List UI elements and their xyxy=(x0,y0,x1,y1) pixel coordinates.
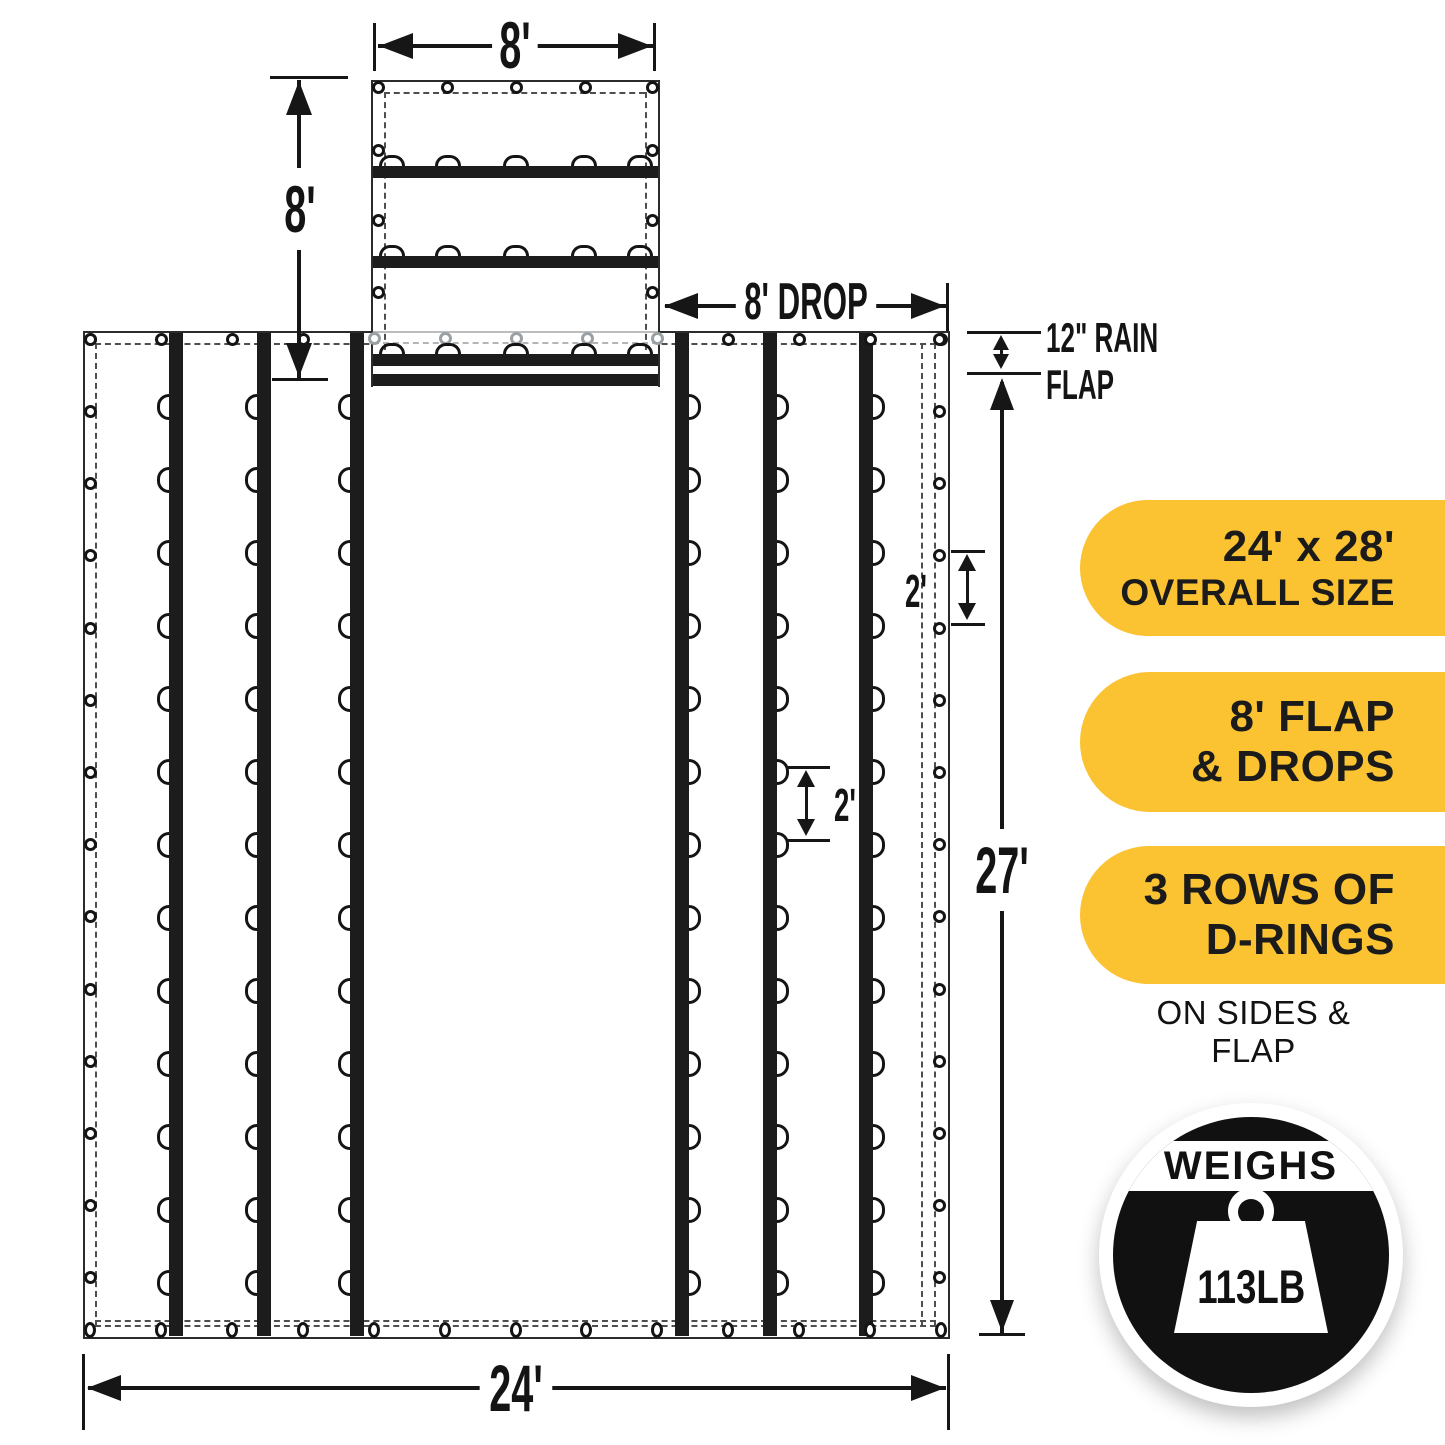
arrowhead xyxy=(993,335,1009,350)
d-ring xyxy=(503,245,529,256)
grommet xyxy=(722,1322,734,1338)
grommet xyxy=(368,332,381,345)
badge-line: 24' x 28' xyxy=(1223,522,1395,572)
dimension-tick xyxy=(951,623,985,626)
grommet xyxy=(368,1322,380,1338)
dashed-hem-line xyxy=(384,92,388,350)
grommet xyxy=(155,333,168,346)
weight-badge: WEIGHS 113LB xyxy=(1099,1103,1403,1407)
grommet xyxy=(580,1322,592,1338)
dimension-tick xyxy=(373,23,376,71)
grommet xyxy=(933,983,946,996)
badges-caption: ON SIDES & FLAP xyxy=(1115,994,1392,1070)
dimension-line xyxy=(1000,382,1004,843)
grommet xyxy=(439,1322,451,1338)
arrowhead xyxy=(958,554,976,571)
badge-line: 8' FLAP xyxy=(1229,692,1395,742)
arrowhead xyxy=(286,343,312,377)
grommet xyxy=(84,1271,97,1284)
grommet xyxy=(372,81,385,94)
flap-webbing-strap xyxy=(373,354,658,366)
dim-label-dring-spacing: 2' xyxy=(834,782,856,828)
grommet xyxy=(933,333,946,346)
grommet xyxy=(84,477,97,490)
grommet xyxy=(372,286,385,299)
grommet xyxy=(579,81,592,94)
dimension-tick xyxy=(946,283,949,331)
arrowhead xyxy=(379,33,413,59)
d-ring xyxy=(571,155,597,166)
grommet xyxy=(933,766,946,779)
flap-webbing-strap xyxy=(373,166,658,178)
grommet xyxy=(510,1322,522,1338)
flap-webbing-strap xyxy=(373,256,658,268)
weight-badge-label: WEIGHS xyxy=(1164,1144,1338,1189)
tarp-spec-diagram: 8' 8' 8' DROP 12" RAIN FLAP 27' 2' 2' 24… xyxy=(0,0,1445,1445)
feature-badge-overall-size: 24' x 28' OVERALL SIZE xyxy=(1080,500,1445,636)
grommet xyxy=(155,1322,167,1338)
webbing-strap xyxy=(350,333,364,1336)
arrowhead xyxy=(797,819,815,836)
grommet xyxy=(651,332,664,345)
weight-value: 113LB xyxy=(1197,1241,1305,1314)
dimension-tick xyxy=(270,76,348,79)
dimension-tick xyxy=(967,331,1041,334)
grommet xyxy=(84,838,97,851)
grommet xyxy=(933,622,946,635)
badge-line: OVERALL SIZE xyxy=(1120,572,1395,614)
grommet xyxy=(84,694,97,707)
webbing-strap xyxy=(859,333,873,1336)
grommet xyxy=(933,694,946,707)
grommet xyxy=(226,1322,238,1338)
grommet xyxy=(297,1322,309,1338)
dimension-tick xyxy=(951,550,985,553)
feature-badge-dring-rows: 3 ROWS OF D-RINGS xyxy=(1080,846,1445,984)
d-ring xyxy=(379,155,405,166)
dimension-tick xyxy=(786,839,830,842)
grommet xyxy=(84,910,97,923)
dim-label-rain-flap-1: 12" RAIN xyxy=(1046,317,1158,359)
grommet xyxy=(646,286,659,299)
grommet xyxy=(933,910,946,923)
arrowhead xyxy=(911,1375,945,1401)
grommet xyxy=(651,1322,663,1338)
grommet xyxy=(933,1199,946,1212)
dimension-tick xyxy=(947,1354,950,1430)
dim-label-flap-length: 8' xyxy=(277,168,323,250)
d-ring xyxy=(503,343,529,354)
dimension-tick xyxy=(786,766,830,769)
dim-label-flap-width: 8' xyxy=(492,10,538,80)
weight-body: 113LB xyxy=(1174,1221,1328,1333)
grommet xyxy=(84,1322,96,1338)
d-ring xyxy=(435,245,461,256)
arrowhead xyxy=(664,293,698,319)
arrowhead xyxy=(990,1300,1014,1332)
grommet xyxy=(933,1271,946,1284)
grommet xyxy=(935,1322,947,1338)
d-ring xyxy=(379,245,405,256)
grommet xyxy=(933,549,946,562)
dim-label-grommet-spacing: 2' xyxy=(905,568,927,614)
dimension-tick xyxy=(979,1333,1025,1336)
grommet xyxy=(646,144,659,157)
dim-label-tarp-width: 24' xyxy=(480,1353,553,1423)
grommet xyxy=(933,1127,946,1140)
dimension-tick xyxy=(272,378,328,381)
d-ring xyxy=(571,343,597,354)
grommet xyxy=(864,333,877,346)
webbing-strap xyxy=(763,333,777,1336)
dashed-hem-line xyxy=(921,343,925,1327)
grommet xyxy=(372,144,385,157)
grommet xyxy=(933,405,946,418)
grommet xyxy=(84,549,97,562)
d-ring xyxy=(503,155,529,166)
badge-line: 3 ROWS OF xyxy=(1144,865,1395,915)
grommet xyxy=(510,81,523,94)
badge-line: D-RINGS xyxy=(1206,915,1395,965)
d-ring xyxy=(435,155,461,166)
grommet xyxy=(793,1322,805,1338)
grommet xyxy=(933,1055,946,1068)
badge-line: & DROPS xyxy=(1191,742,1395,792)
grommet xyxy=(84,333,97,346)
d-ring xyxy=(627,343,653,354)
grommet xyxy=(84,983,97,996)
d-ring xyxy=(435,343,461,354)
dim-label-rain-flap-2: FLAP xyxy=(1046,364,1114,406)
grommet xyxy=(722,333,735,346)
arrowhead xyxy=(286,81,312,115)
d-ring xyxy=(379,343,405,354)
grommet xyxy=(646,214,659,227)
webbing-strap xyxy=(257,333,271,1336)
grommet xyxy=(933,477,946,490)
grommet xyxy=(84,405,97,418)
dimension-tick xyxy=(967,372,1041,375)
feature-badge-flap-drops: 8' FLAP & DROPS xyxy=(1080,672,1445,812)
d-ring xyxy=(571,245,597,256)
arrowhead xyxy=(990,378,1014,410)
grommet xyxy=(226,333,239,346)
weight-badge-band: WEIGHS xyxy=(1113,1141,1389,1191)
grommet xyxy=(84,1127,97,1140)
flap-webbing-strap xyxy=(373,374,658,386)
grommet xyxy=(84,766,97,779)
arrowhead xyxy=(618,33,652,59)
d-ring xyxy=(627,245,653,256)
weight-badge-face: WEIGHS 113LB xyxy=(1113,1117,1389,1393)
dim-label-tarp-length: 27' xyxy=(970,829,1033,911)
arrowhead xyxy=(87,1375,121,1401)
grommet xyxy=(793,333,806,346)
grommet xyxy=(646,81,659,94)
arrowhead xyxy=(911,293,945,319)
d-ring xyxy=(627,155,653,166)
grommet xyxy=(441,81,454,94)
webbing-strap xyxy=(169,333,183,1336)
grommet xyxy=(372,214,385,227)
dimension-tick xyxy=(82,1354,85,1430)
webbing-strap xyxy=(675,333,689,1336)
dimension-line xyxy=(1000,897,1004,1333)
grommet xyxy=(864,1322,876,1338)
arrowhead xyxy=(797,770,815,787)
grommet xyxy=(84,622,97,635)
grommet xyxy=(84,1055,97,1068)
dim-label-drop: 8' DROP xyxy=(736,274,876,330)
grommet xyxy=(933,838,946,851)
grommet xyxy=(84,1199,97,1212)
arrowhead xyxy=(958,603,976,620)
arrowhead xyxy=(993,354,1009,369)
